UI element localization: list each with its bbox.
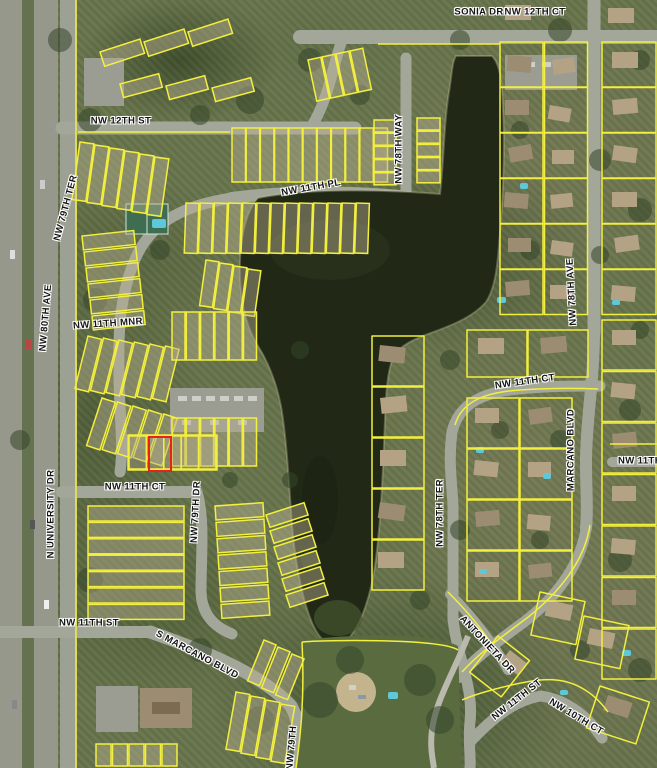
selected-parcel-highlight[interactable] <box>148 436 172 472</box>
map-overlay-svg <box>0 0 657 768</box>
aerial-parcel-map[interactable]: SONIA DRNW 12TH CTNW 12TH STNW 78TH WAYN… <box>0 0 657 768</box>
